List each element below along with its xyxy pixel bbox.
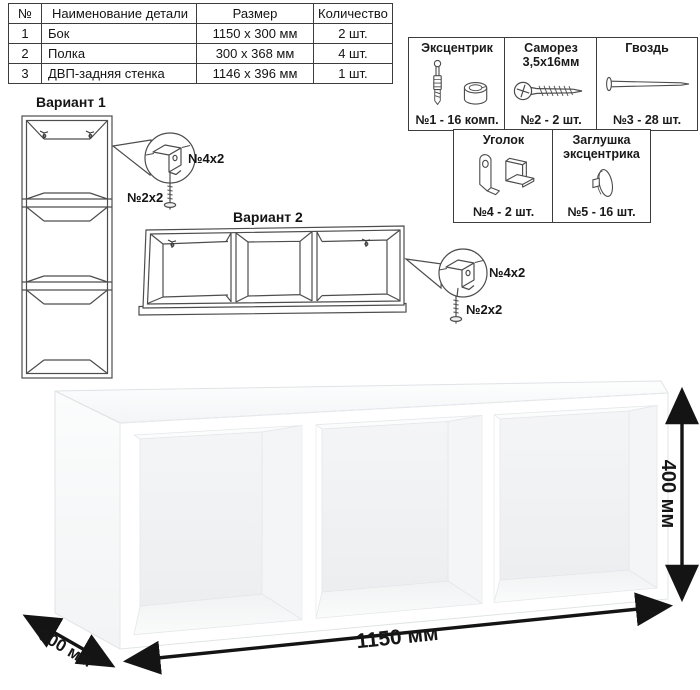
hardware-count: №3 - 28 шт.	[613, 113, 681, 127]
col-header-number: №	[9, 4, 42, 24]
screw-detail	[164, 182, 175, 210]
screw-detail	[450, 296, 461, 324]
variant2-label: Вариант 2	[233, 209, 303, 225]
variant1-label: Вариант 1	[36, 94, 106, 110]
col-header-size: Размер	[197, 4, 314, 24]
corner-bracket-icon	[466, 149, 542, 203]
hardware-cell-nail: Гвоздь №3 - 28 шт.	[596, 37, 698, 131]
table-row: 2 Полка 300 x 368 мм 4 шт.	[9, 44, 393, 64]
variant1-drawing: Вариант 1	[22, 94, 112, 378]
variant2-callout: №4x2 №2x2	[406, 249, 525, 324]
part-quantity: 2 шт.	[314, 24, 393, 44]
hardware-count: №4 - 2 шт.	[473, 205, 534, 219]
part-size: 300 x 368 мм	[197, 44, 314, 64]
cam-cap-icon	[582, 163, 622, 203]
variant1-callout: №4x2 №2x2	[113, 133, 224, 210]
col-header-name: Наименование детали	[42, 4, 197, 24]
part-size: 1146 x 396 мм	[197, 64, 314, 84]
hardware-title: Заглушка эксцентрика	[563, 133, 640, 161]
hardware-cell-eccentric: Эксцентрик №1 - 16 комп.	[408, 37, 506, 131]
variant1-bracket-label: №4x2	[188, 151, 224, 166]
part-number: 3	[9, 64, 42, 84]
hardware-kit-box: Эксцентрик №1 - 16 комп. Саморез	[408, 37, 698, 223]
variant2-screw-label: №2x2	[466, 302, 502, 317]
part-size: 1150 x 300 мм	[197, 24, 314, 44]
part-quantity: 1 шт.	[314, 64, 393, 84]
nail-icon	[601, 73, 693, 95]
variant2-drawing: Вариант 2	[139, 209, 406, 315]
parts-table: № Наименование детали Размер Количество …	[8, 3, 393, 84]
col-header-quantity: Количество	[314, 4, 393, 24]
shelf-3d-render	[55, 381, 668, 649]
hardware-cell-screw: Саморез 3,5x16мм №2 - 2 шт.	[504, 37, 598, 131]
part-name: Полка	[42, 44, 197, 64]
hardware-title: Уголок	[483, 133, 524, 147]
table-row: 3 ДВП-задняя стенка 1146 x 396 мм 1 шт.	[9, 64, 393, 84]
depth-dimension-label: 300 мм	[36, 625, 96, 671]
part-quantity: 4 шт.	[314, 44, 393, 64]
hardware-count: №5 - 16 шт.	[567, 205, 635, 219]
assembly-instruction-sheet: Вариант 1 №4x2 №2x2	[0, 0, 700, 690]
hardware-count: №1 - 16 комп.	[415, 113, 498, 127]
table-row: 1 Бок 1150 x 300 мм 2 шт.	[9, 24, 393, 44]
hardware-title: Гвоздь	[625, 41, 669, 55]
table-header-row: № Наименование детали Размер Количество	[9, 4, 393, 24]
hardware-count: №2 - 2 шт.	[520, 113, 581, 127]
hardware-title: Саморез 3,5x16мм	[523, 41, 580, 69]
variant1-screw-label: №2x2	[127, 190, 163, 205]
height-dimension-label: 400 мм	[657, 460, 679, 529]
part-number: 1	[9, 24, 42, 44]
part-number: 2	[9, 44, 42, 64]
part-name: Бок	[42, 24, 197, 44]
screw-icon	[509, 74, 593, 108]
hardware-cell-cap: Заглушка эксцентрика №5 - 16 шт.	[552, 129, 651, 223]
hardware-cell-bracket: Уголок №4 - 2 шт.	[453, 129, 554, 223]
variant2-bracket-label: №4x2	[489, 265, 525, 280]
hardware-title: Эксцентрик	[421, 41, 493, 55]
cam-and-dowel-icon	[421, 58, 493, 110]
part-name: ДВП-задняя стенка	[42, 64, 197, 84]
